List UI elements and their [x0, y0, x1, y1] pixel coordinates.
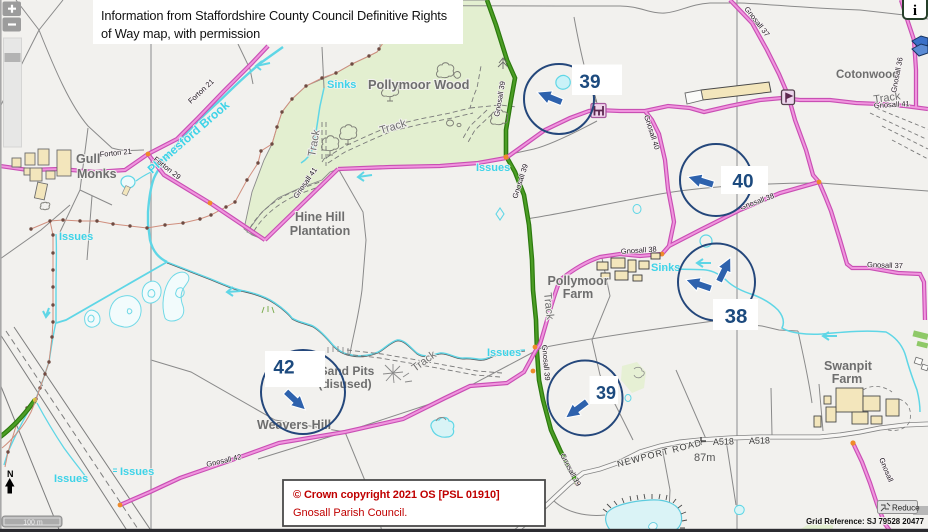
- svg-text:87m: 87m: [694, 452, 715, 464]
- svg-text:A518: A518: [713, 436, 734, 447]
- svg-text:Farm: Farm: [563, 287, 594, 301]
- svg-text:Issues: Issues: [487, 347, 521, 359]
- svg-text:Gnosall 37: Gnosall 37: [867, 260, 903, 270]
- svg-text:Hine Hill: Hine Hill: [295, 210, 345, 224]
- svg-text:Reduce: Reduce: [892, 504, 920, 513]
- svg-text:Grid Reference: SJ 79528 20477: Grid Reference: SJ 79528 20477: [806, 517, 924, 526]
- svg-text:Swanpit: Swanpit: [824, 359, 873, 373]
- svg-text:N: N: [7, 469, 14, 479]
- svg-text:Sinks: Sinks: [327, 79, 356, 91]
- svg-text:Sand Pits: Sand Pits: [320, 364, 375, 378]
- svg-text:Gull: Gull: [76, 152, 100, 166]
- svg-text:Pollymoor Wood: Pollymoor Wood: [368, 77, 469, 92]
- svg-text:Monks: Monks: [77, 167, 117, 181]
- svg-text:39: 39: [579, 72, 600, 93]
- svg-text:Pollymoor: Pollymoor: [547, 274, 608, 288]
- svg-text:A518: A518: [749, 435, 770, 446]
- svg-text:Gnosall 41: Gnosall 41: [874, 99, 910, 110]
- svg-text:Issues: Issues: [54, 473, 88, 485]
- svg-text:39: 39: [596, 383, 616, 403]
- svg-text:Issues: Issues: [59, 231, 93, 243]
- svg-text:100 m: 100 m: [23, 520, 43, 527]
- svg-text:38: 38: [725, 305, 748, 328]
- svg-text:Sinks: Sinks: [651, 262, 680, 274]
- svg-text:Cotonwood: Cotonwood: [836, 69, 899, 81]
- svg-text:i: i: [913, 3, 917, 19]
- svg-text:Gnosall Parish Council.: Gnosall Parish Council.: [293, 507, 407, 519]
- svg-text:42: 42: [273, 358, 294, 379]
- svg-text:© Crown copyright 2021 OS [PSL: © Crown copyright 2021 OS [PSL 01910]: [293, 489, 500, 501]
- svg-text:Issues: Issues: [476, 162, 510, 174]
- svg-text:of Way map, with permission: of Way map, with permission: [101, 26, 260, 41]
- svg-text:Plantation: Plantation: [290, 224, 350, 238]
- svg-text:Farm: Farm: [832, 372, 863, 386]
- svg-text:Information from Staffordshire: Information from Staffordshire County Co…: [101, 8, 447, 23]
- svg-text:Issues: Issues: [120, 466, 154, 478]
- svg-text:40: 40: [732, 172, 753, 193]
